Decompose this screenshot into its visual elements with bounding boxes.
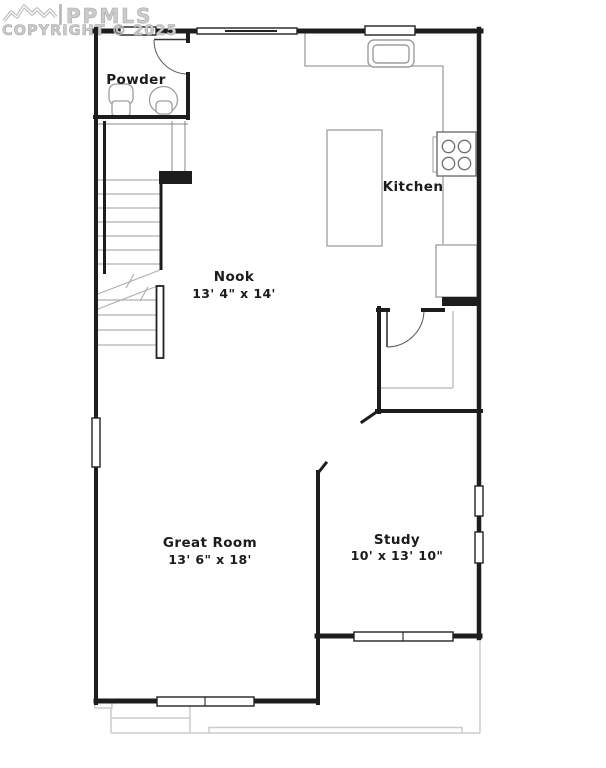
staircase-icon — [95, 121, 192, 358]
powder-door-swing-icon — [154, 40, 188, 75]
pantry-wall-bar — [442, 297, 481, 306]
kitchen-sink-icon — [368, 40, 414, 67]
window-study — [354, 632, 453, 641]
stair-chase — [95, 121, 188, 171]
floor-plan-page: PPMLS COPYRIGHT © 2025 Powder Kitchen No… — [0, 0, 606, 768]
window-top-band — [197, 28, 297, 34]
pedestal-sink-icon — [109, 84, 133, 116]
kitchen-island-icon — [327, 130, 382, 246]
mountain-ridge-icon — [4, 4, 61, 25]
room-dims-nook: 13' 4" x 14' — [192, 286, 276, 301]
window-right-wall-upper — [475, 486, 483, 516]
floor-plan-drawing: PPMLS COPYRIGHT © 2025 Powder Kitchen No… — [0, 0, 606, 768]
window-kitchen-sink — [365, 26, 415, 35]
pantry-shelves — [380, 311, 453, 388]
stair-rail — [157, 286, 164, 358]
refrigerator-icon — [436, 245, 477, 297]
cooktop-icon — [433, 132, 476, 176]
room-dims-great-room: 13' 6" x 18' — [168, 552, 252, 567]
exterior-walls — [94, 29, 481, 703]
room-label-study: Study — [374, 532, 420, 548]
stair-landing-wall — [159, 171, 192, 184]
room-label-powder: Powder — [106, 72, 166, 88]
pantry-door-swing-icon — [387, 310, 424, 347]
patio-outline — [95, 641, 480, 733]
watermark: PPMLS COPYRIGHT © 2025 — [2, 4, 178, 39]
room-label-nook: Nook — [214, 269, 255, 285]
window-left-wall — [92, 418, 100, 467]
interior-walls — [95, 31, 481, 703]
windows — [92, 26, 483, 706]
window-right-wall-lower — [475, 532, 483, 563]
watermark-copyright: COPYRIGHT © 2025 — [2, 23, 178, 39]
room-label-great-room: Great Room — [163, 535, 257, 551]
room-label-kitchen: Kitchen — [383, 179, 444, 195]
window-great-room — [157, 697, 254, 706]
toilet-icon — [150, 87, 178, 115]
room-dims-study: 10' x 13' 10" — [351, 548, 444, 563]
